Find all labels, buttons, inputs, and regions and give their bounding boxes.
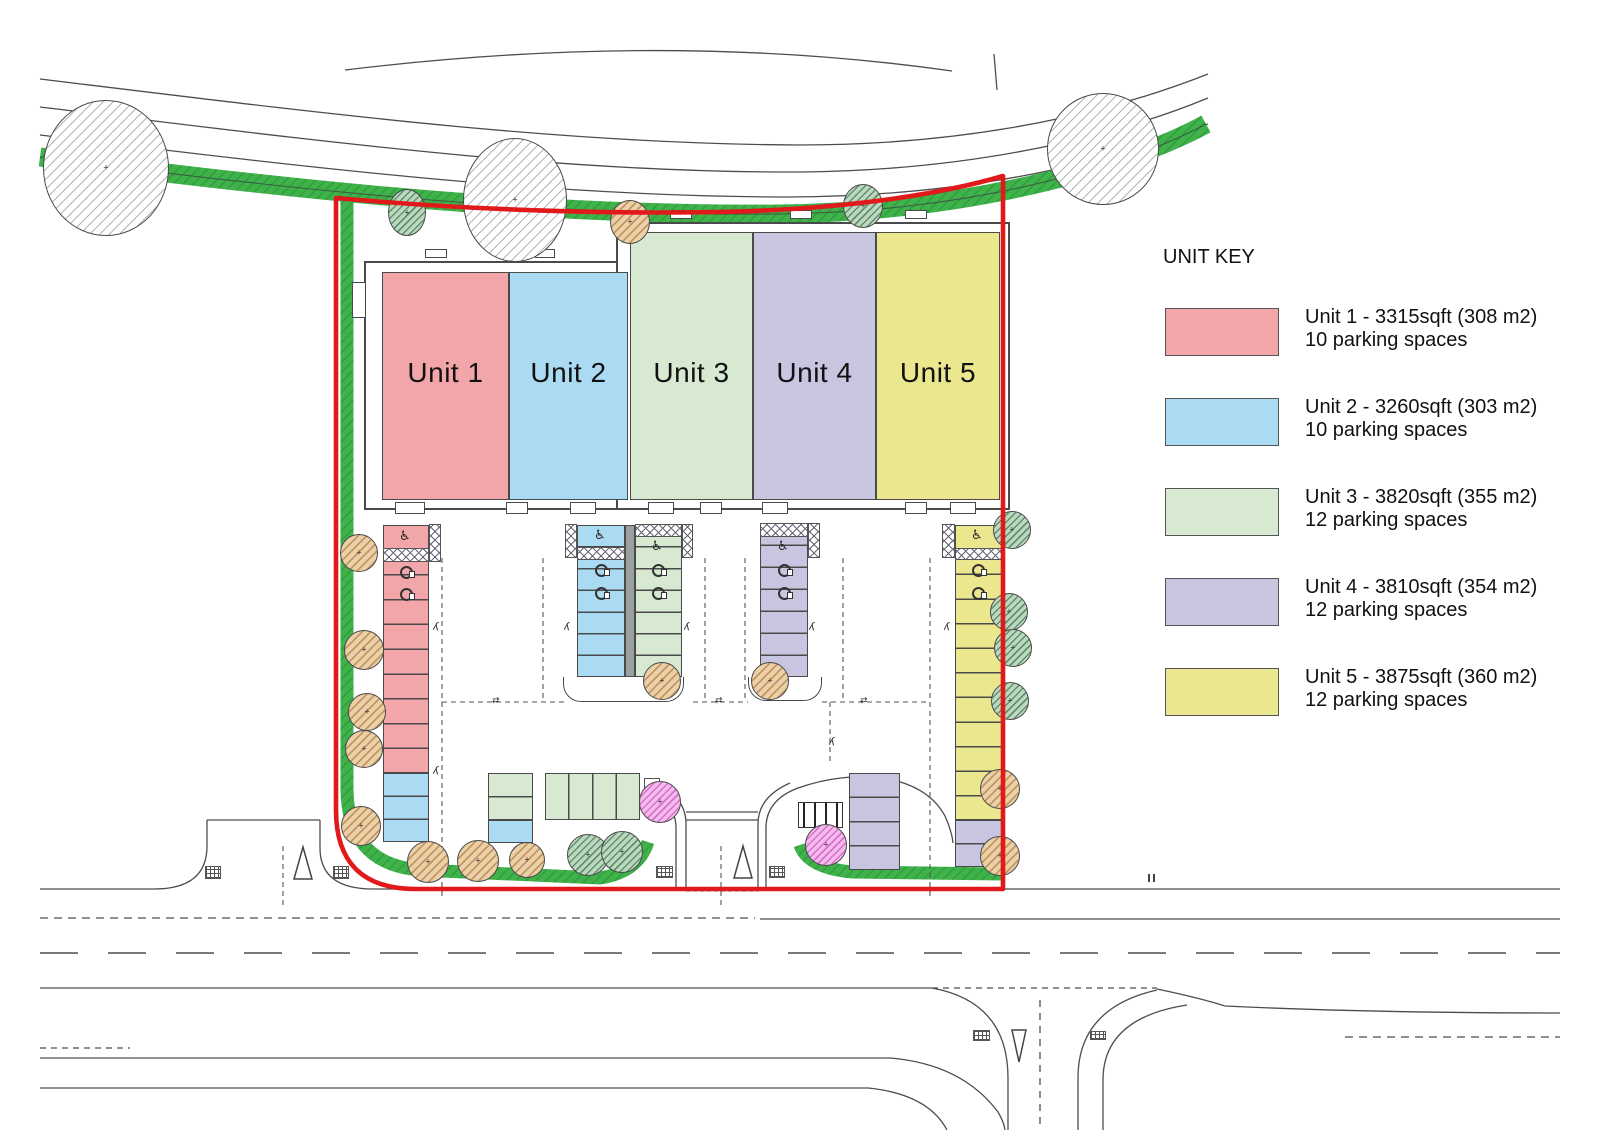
legend-entry-unit-4: Unit 4 - 3810sqft (354 m2) 12 parking sp… bbox=[1305, 576, 1537, 622]
legend-swatch-unit-2 bbox=[1165, 398, 1279, 446]
legend-swatch-unit-4 bbox=[1165, 578, 1279, 626]
legend-line: Unit 4 - 3810sqft (354 m2) bbox=[1305, 576, 1537, 599]
legend-swatch-unit-1 bbox=[1165, 308, 1279, 356]
legend-line: 12 parking spaces bbox=[1305, 599, 1537, 622]
legend-line: Unit 5 - 3875sqft (360 m2) bbox=[1305, 666, 1537, 689]
legend-swatch-unit-3 bbox=[1165, 488, 1279, 536]
legend-line: 10 parking spaces bbox=[1305, 419, 1537, 442]
legend-line: 10 parking spaces bbox=[1305, 329, 1537, 352]
legend-entry-unit-1: Unit 1 - 3315sqft (308 m2) 10 parking sp… bbox=[1305, 306, 1537, 352]
legend-entry-unit-3: Unit 3 - 3820sqft (355 m2) 12 parking sp… bbox=[1305, 486, 1537, 532]
legend-line: Unit 1 - 3315sqft (308 m2) bbox=[1305, 306, 1537, 329]
legend-line: 12 parking spaces bbox=[1305, 509, 1537, 532]
legend-swatch-unit-5 bbox=[1165, 668, 1279, 716]
boundary-overlay bbox=[0, 0, 1600, 1130]
site-boundary-redline bbox=[336, 176, 1003, 889]
legend-title: UNIT KEY bbox=[1163, 246, 1255, 269]
legend-line: 12 parking spaces bbox=[1305, 689, 1537, 712]
legend-line: Unit 2 - 3260sqft (303 m2) bbox=[1305, 396, 1537, 419]
legend-entry-unit-2: Unit 2 - 3260sqft (303 m2) 10 parking sp… bbox=[1305, 396, 1537, 442]
give-way-markings bbox=[294, 846, 1026, 1062]
legend-entry-unit-5: Unit 5 - 3875sqft (360 m2) 12 parking sp… bbox=[1305, 666, 1537, 712]
legend-line: Unit 3 - 3820sqft (355 m2) bbox=[1305, 486, 1537, 509]
site-plan: Unit 1 Unit 2 Unit 3 Unit 4 Unit 5 ♿ ♿ ♿… bbox=[0, 0, 1600, 1130]
